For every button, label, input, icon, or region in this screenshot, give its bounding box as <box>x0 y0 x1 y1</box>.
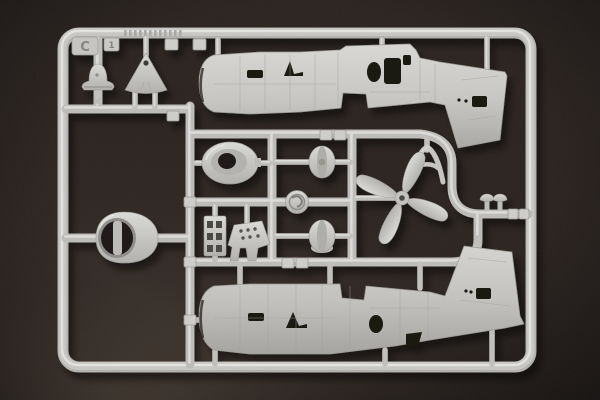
photo-stage: C 1 <box>0 0 600 400</box>
sprue-photo: C 1 <box>0 0 600 400</box>
film-grain-overlay <box>0 0 600 400</box>
